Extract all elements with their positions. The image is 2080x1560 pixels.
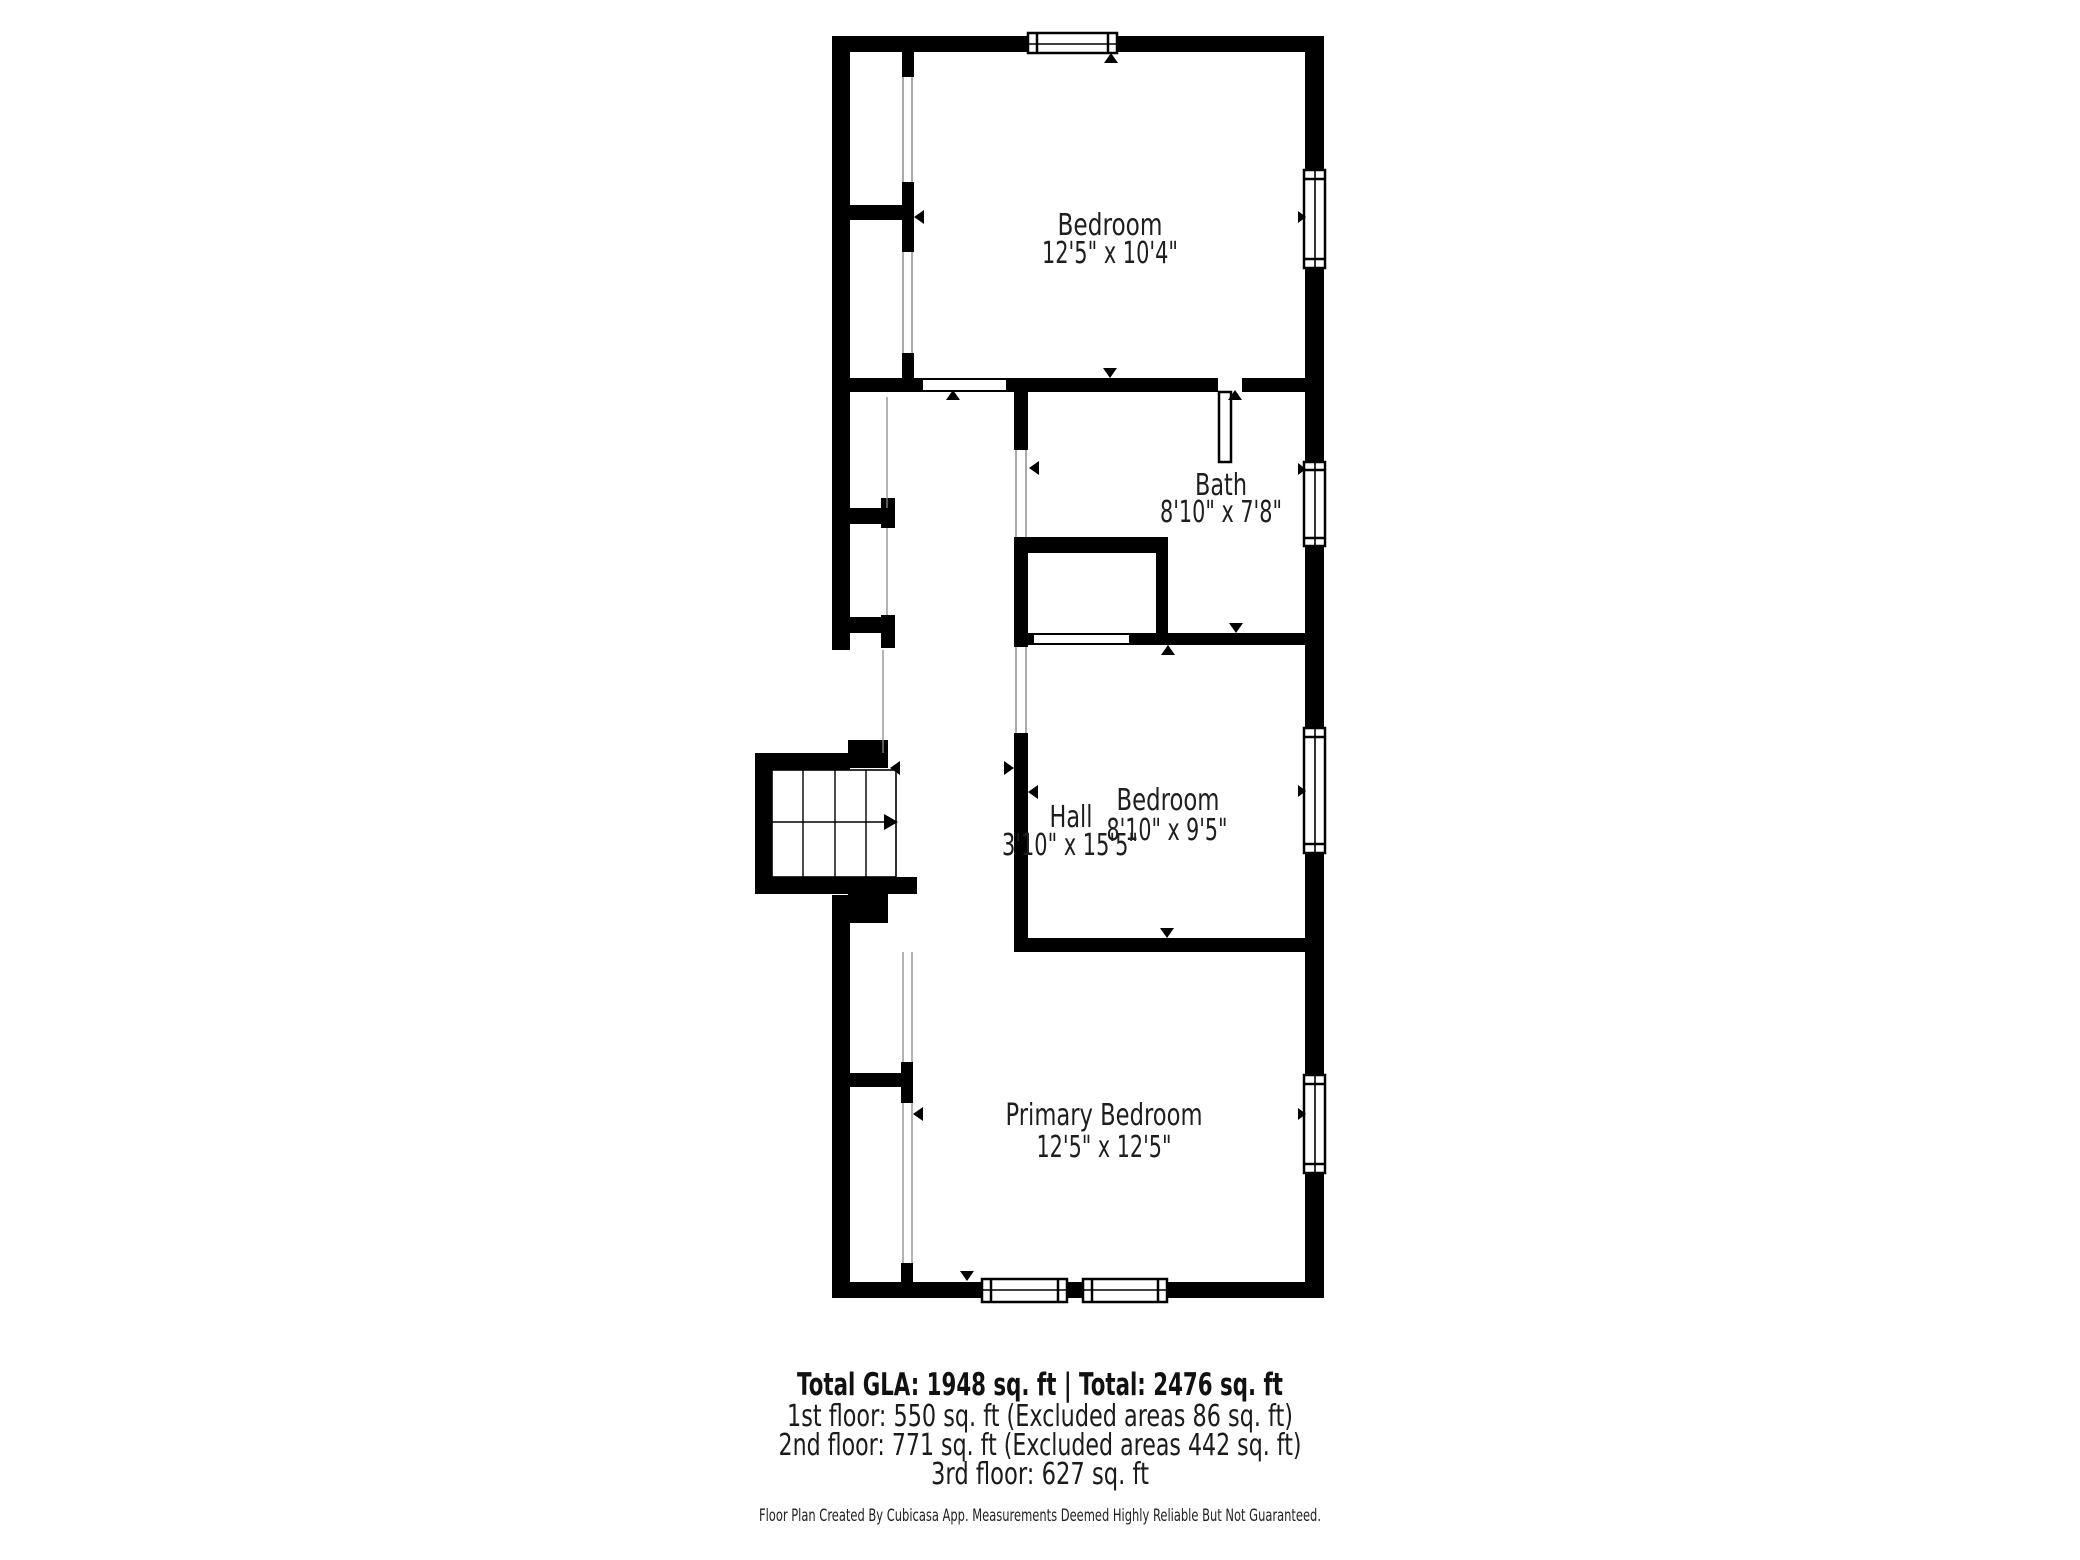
floor-plan-canvas: Bedroom 12'5" x 10'4" Bath 8'10" x 7'8" … xyxy=(0,0,2080,1560)
door-swing-arrow-right-icon xyxy=(1004,761,1014,775)
room-dimensions: 12'5" x 12'5" xyxy=(1037,1130,1172,1165)
floor-plan-page: Bedroom 12'5" x 10'4" Bath 8'10" x 7'8" … xyxy=(0,0,2080,1560)
disclaimer-text: Floor Plan Created By Cubicasa App. Meas… xyxy=(759,1506,1321,1526)
room-labels: Bedroom 12'5" x 10'4" Bath 8'10" x 7'8" … xyxy=(1002,208,1282,1165)
wall-stair-bottom xyxy=(755,877,917,894)
door-leaf-bath xyxy=(1219,392,1231,462)
window-frame xyxy=(1028,33,1117,53)
door-swing-arrow-down-icon xyxy=(960,1271,974,1281)
total-gla-line: Total GLA: 1948 sq. ft | Total: 2476 sq.… xyxy=(797,1367,1283,1403)
door-swing-arrow-up-icon xyxy=(1161,645,1175,655)
wall-stair-top xyxy=(755,753,850,770)
wall-midbedroom-bottom xyxy=(1014,938,1306,952)
room-name: Primary Bedroom xyxy=(1006,1098,1203,1133)
door-swing-arrow-left-icon xyxy=(890,761,900,775)
door-swing-arrow-left-icon xyxy=(1029,461,1039,475)
door-swing-arrow-down-icon xyxy=(1229,623,1243,633)
summary-block: Total GLA: 1948 sq. ft | Total: 2476 sq.… xyxy=(759,1367,1321,1526)
wall-stair-topright-block xyxy=(848,740,888,768)
wall-bath-bottom xyxy=(1130,633,1306,645)
window-right-midbedroom xyxy=(1304,728,1325,853)
wall-stub-bottom-bar xyxy=(848,1073,902,1087)
wall-stub-top xyxy=(848,205,904,220)
wall-stub-bottom-cap xyxy=(901,1062,913,1103)
wall-stub-mid-b-bar xyxy=(848,617,882,633)
room-dimensions: 8'10" x 7'8" xyxy=(1160,495,1282,530)
door-swing-arrow-left-icon xyxy=(914,210,924,224)
window-top xyxy=(1028,33,1117,53)
staircase xyxy=(772,770,898,877)
wall-strip-divider-seg1 xyxy=(902,52,914,77)
closet-door-opening xyxy=(1033,634,1130,644)
wall-stair-step-block xyxy=(848,893,888,923)
wall-cap-bottom-strip xyxy=(901,1263,913,1282)
door-swing-arrow-left-icon xyxy=(1028,785,1038,799)
stair-tread-area xyxy=(772,770,896,877)
room-dimensions: 8'10" x 9'5" xyxy=(1107,813,1228,848)
window-right-bath xyxy=(1304,462,1325,546)
door-swing-arrow-down-icon xyxy=(1103,368,1117,378)
wall-bedroom-bottom-right xyxy=(1242,378,1306,392)
wall-stub-mid-a-cap xyxy=(881,498,895,528)
wall-hall-divider-seg1 xyxy=(1014,378,1028,450)
wall-stub-mid-b-cap xyxy=(881,615,895,648)
wall-bottom-exterior xyxy=(832,1282,1324,1298)
wall-closet-top xyxy=(1014,537,1168,553)
wall-hall-divider-seg2 xyxy=(1014,537,1028,647)
door-swing-arrow-left-icon xyxy=(913,1107,923,1121)
wall-closet-right xyxy=(1156,553,1168,645)
room-dimensions: 12'5" x 10'4" xyxy=(1042,236,1178,271)
wall-bedroom-bottom-mid xyxy=(1007,378,1218,392)
wall-stub-mid-a-bar xyxy=(848,508,882,524)
door-opening-hall-top xyxy=(922,379,1007,391)
floor-area-line-3: 3rd floor: 627 sq. ft xyxy=(931,1457,1149,1492)
wall-left-exterior-lower xyxy=(832,895,850,1298)
wall-stair-left xyxy=(755,753,772,893)
window-right-bedroom xyxy=(1304,170,1325,268)
door-swing-arrow-down-icon xyxy=(1160,928,1174,938)
wall-bedroom-bottom-left xyxy=(832,378,922,392)
window-bottom-left xyxy=(982,1279,1067,1302)
window-bottom-right xyxy=(1083,1279,1167,1302)
wall-left-exterior-upper xyxy=(832,36,850,650)
window-right-primary xyxy=(1304,1075,1325,1173)
window-direction-arrow-up-icon xyxy=(1104,53,1118,63)
